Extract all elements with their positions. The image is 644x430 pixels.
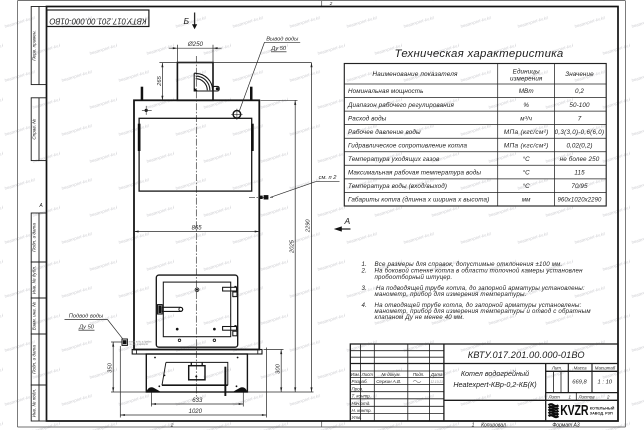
svg-text:Расход воды: Расход воды bbox=[348, 114, 387, 122]
svg-text:не более 250: не более 250 bbox=[560, 155, 600, 163]
svg-text:Вывод воды: Вывод воды bbox=[266, 37, 299, 43]
svg-text:KVZR: KVZR bbox=[560, 401, 589, 418]
svg-text:50-100: 50-100 bbox=[569, 102, 590, 109]
svg-text:вывод воды в дренаж: вывод воды в дренаж bbox=[129, 341, 152, 344]
svg-text:Ø250: Ø250 bbox=[187, 41, 204, 48]
svg-text:пробоотборный штуцер.: пробоотборный штуцер. bbox=[375, 274, 453, 281]
svg-text:КОТЕЛЬНЫЙ: КОТЕЛЬНЫЙ bbox=[590, 406, 615, 410]
svg-text:Подвод воды: Подвод воды bbox=[69, 314, 104, 320]
svg-text:Максимальная рабочая температу: Максимальная рабочая температура воды bbox=[348, 169, 481, 177]
svg-text:А: А bbox=[344, 216, 351, 226]
svg-text:Значение: Значение bbox=[565, 71, 594, 78]
svg-text:Масса: Масса bbox=[574, 365, 588, 370]
svg-text:Изм.: Изм. bbox=[351, 372, 360, 377]
svg-text:°С: °С bbox=[523, 155, 531, 163]
svg-text:ЗАВОД. РЗП: ЗАВОД. РЗП bbox=[590, 412, 613, 416]
svg-text:Справ. №: Справ. № bbox=[32, 119, 37, 140]
svg-text:Ду 50: Ду 50 bbox=[78, 324, 95, 330]
svg-text:669,8: 669,8 bbox=[572, 379, 587, 385]
svg-text:Лит.: Лит. bbox=[551, 365, 562, 370]
svg-text:Рабочее давление воды: Рабочее давление воды bbox=[348, 128, 421, 136]
svg-text:Формат А3: Формат А3 bbox=[552, 423, 580, 429]
svg-text:Ду 50: Ду 50 bbox=[270, 46, 287, 52]
svg-text:Котел водогрейный: Котел водогрейный bbox=[461, 369, 529, 378]
svg-text:измерения: измерения bbox=[510, 76, 543, 83]
svg-text:Подп. и дата: Подп. и дата bbox=[32, 223, 37, 252]
svg-text:12.10.21: 12.10.21 bbox=[431, 380, 444, 384]
svg-text:Взам. инв. №: Взам. инв. № bbox=[32, 302, 37, 330]
svg-text:№ докум.: № докум. bbox=[381, 372, 400, 377]
svg-text:350: 350 bbox=[107, 362, 113, 372]
svg-text:Н. контр.: Н. контр. bbox=[352, 408, 372, 413]
svg-text:1: 1 bbox=[472, 423, 475, 429]
svg-text:Номинальная мощность: Номинальная мощность bbox=[348, 88, 424, 95]
svg-text:1020: 1020 bbox=[189, 409, 203, 415]
svg-text:м³/ч: м³/ч bbox=[520, 115, 532, 122]
svg-text:Дата: Дата bbox=[430, 372, 443, 377]
svg-text:Температура воды (вход/выход): Температура воды (вход/выход) bbox=[348, 182, 447, 190]
svg-text:Диапазон рабочего регулировани: Диапазон рабочего регулирования bbox=[347, 101, 454, 109]
svg-text:Гидравлическое сопротивление к: Гидравлическое сопротивление котла bbox=[348, 141, 467, 149]
svg-text:4.: 4. bbox=[362, 302, 367, 309]
svg-text:Наименование показателя: Наименование показателя bbox=[372, 71, 458, 78]
svg-text:265: 265 bbox=[157, 75, 163, 86]
svg-text:Перв. примен.: Перв. примен. bbox=[32, 30, 37, 61]
svg-text:Масштаб: Масштаб bbox=[595, 365, 616, 370]
svg-text:3.: 3. bbox=[362, 285, 367, 292]
svg-text:%: % bbox=[523, 102, 529, 109]
svg-text:Лист: Лист bbox=[361, 372, 374, 377]
svg-text:0,2: 0,2 bbox=[575, 88, 584, 95]
svg-text:Нач.отд.: Нач.отд. bbox=[352, 401, 371, 406]
svg-text:Копировал: Копировал bbox=[481, 423, 506, 429]
svg-text:Габариты котла (длинна х ширин: Габариты котла (длинна х ширина х высота… bbox=[348, 196, 489, 204]
svg-text:Температура уходящих газов: Температура уходящих газов bbox=[348, 155, 440, 163]
svg-text:2.: 2. bbox=[361, 268, 367, 275]
svg-text:КВТУ.017.201.00.000-01ВО: КВТУ.017.201.00.000-01ВО bbox=[468, 350, 585, 360]
svg-text:МПа (кгс/см²): МПа (кгс/см²) bbox=[504, 129, 549, 136]
svg-text:Единицы: Единицы bbox=[513, 67, 540, 75]
svg-text:Пров.: Пров. bbox=[352, 386, 364, 391]
svg-text:1 : 10: 1 : 10 bbox=[598, 379, 613, 385]
svg-text:см. п 2: см. п 2 bbox=[319, 175, 338, 181]
svg-text:0,02(0,2): 0,02(0,2) bbox=[566, 142, 592, 149]
svg-text:Техническая характеристика: Техническая характеристика bbox=[394, 48, 563, 60]
svg-text:манометр, прибор для измерения: манометр, прибор для измерения температу… bbox=[375, 291, 527, 298]
svg-text:633: 633 bbox=[192, 398, 203, 404]
svg-text:0,3(3,0)-0,6(6,0): 0,3(3,0)-0,6(6,0) bbox=[555, 129, 605, 136]
svg-text:2: 2 bbox=[170, 422, 174, 427]
svg-text:115: 115 bbox=[574, 170, 585, 177]
svg-text:Т. контр.: Т. контр. bbox=[352, 394, 371, 399]
svg-text:Серкин А.В.: Серкин А.В. bbox=[376, 379, 401, 384]
svg-text:Инв. № подл.: Инв. № подл. bbox=[32, 389, 37, 418]
svg-text:960х1020х2290: 960х1020х2290 bbox=[557, 198, 602, 204]
svg-text:Инв. № дубл.: Инв. № дубл. bbox=[32, 266, 37, 294]
svg-text:°С: °С bbox=[523, 182, 531, 190]
svg-text:70/95: 70/95 bbox=[571, 183, 588, 190]
svg-text:мм: мм bbox=[522, 197, 531, 204]
svg-text:300: 300 bbox=[275, 363, 281, 373]
svg-text:Разраб.: Разраб. bbox=[352, 379, 368, 384]
svg-text:при оп. операциях: при оп. операциях bbox=[129, 344, 149, 346]
svg-text:2: 2 bbox=[329, 1, 333, 6]
svg-text:МПа (кгс/см²): МПа (кгс/см²) bbox=[504, 142, 549, 149]
svg-text:А: А bbox=[38, 203, 43, 209]
svg-text:2290: 2290 bbox=[306, 219, 312, 234]
svg-text:°С: °С bbox=[523, 169, 531, 177]
svg-text:Подп. и дата: Подп. и дата bbox=[32, 345, 37, 374]
svg-text:2025: 2025 bbox=[289, 239, 295, 254]
svg-text:Листов: Листов bbox=[578, 394, 596, 399]
svg-text:Утв.: Утв. bbox=[352, 415, 362, 420]
svg-text:7: 7 bbox=[578, 115, 582, 122]
svg-text:Лист: Лист bbox=[548, 394, 561, 399]
svg-text:2: 2 bbox=[606, 394, 610, 399]
svg-text:Б: Б bbox=[184, 16, 190, 26]
svg-text:МВт: МВт bbox=[519, 88, 534, 95]
svg-text:865: 865 bbox=[192, 226, 203, 232]
svg-text:Heatexpert-КВр-0,2-КБ(К): Heatexpert-КВр-0,2-КБ(К) bbox=[453, 380, 536, 389]
svg-text:КВТУ.017.201.00.000-01ВО: КВТУ.017.201.00.000-01ВО bbox=[49, 16, 146, 25]
svg-text:Подп.: Подп. bbox=[413, 372, 425, 377]
svg-text:клапаном Ду не менее 40 мм.: клапаном Ду не менее 40 мм. bbox=[375, 314, 465, 321]
